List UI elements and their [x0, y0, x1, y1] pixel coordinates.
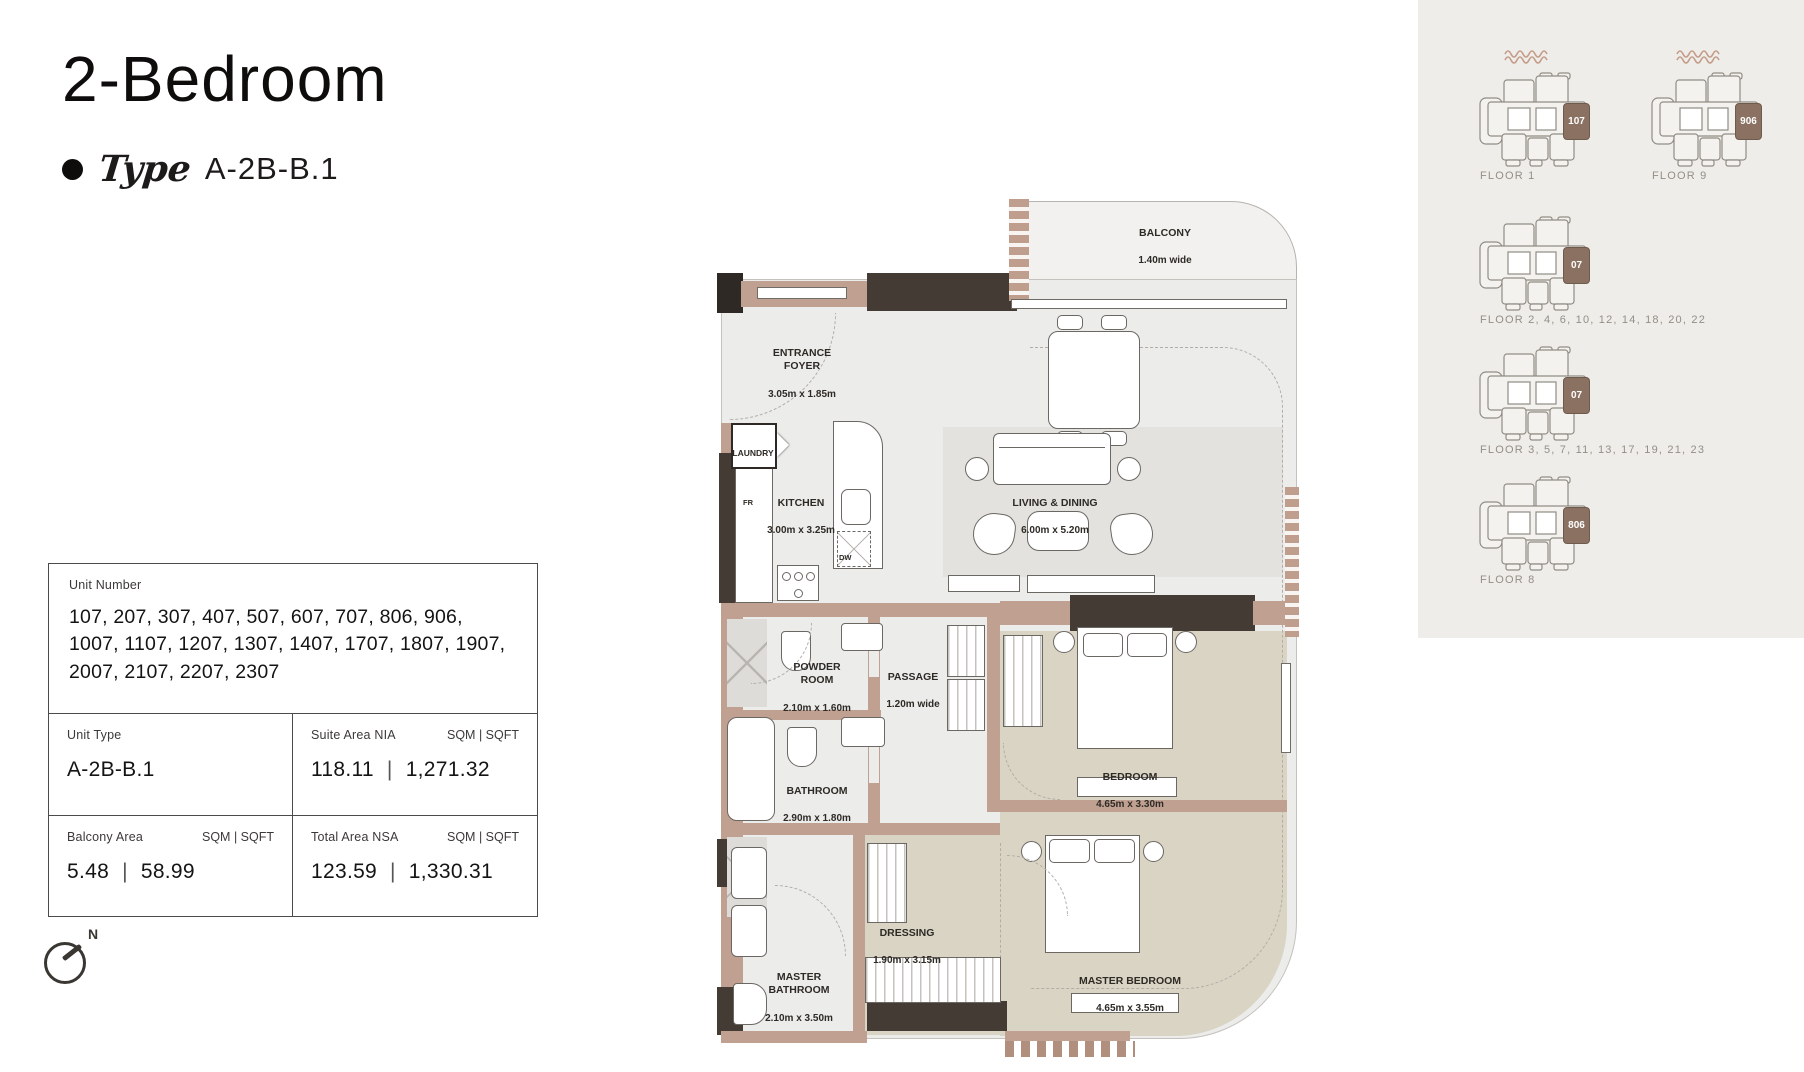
nightstand [1021, 841, 1042, 862]
room-name: LIVING & DINING [975, 497, 1135, 511]
keyplan-unit-badge: 07 [1563, 247, 1590, 284]
balcony-area-value: 5.48 | 58.99 [67, 860, 274, 884]
total-area-units: SQM | SQFT [447, 830, 519, 844]
room-dims: 3.05m x 1.85m [741, 388, 863, 401]
shower-tile [727, 619, 767, 707]
unit-number-label: Unit Number [69, 578, 517, 592]
balcony-area-sqm: 5.48 [67, 860, 109, 884]
room-dims: 4.65m x 3.55m [1045, 1002, 1215, 1015]
suite-area-sqft: 1,271.32 [406, 758, 490, 782]
value-separator: | [122, 860, 128, 884]
keyplan-floor-label: FLOOR 8 [1480, 574, 1535, 586]
window [1281, 663, 1291, 753]
balcony-area-sqft: 58.99 [141, 860, 195, 884]
room-name: MASTER BATHROOM [739, 971, 859, 998]
keyplan-floor-label: FLOOR 2, 4, 6, 10, 12, 14, 18, 20, 22 [1480, 314, 1706, 326]
room-label-master-bathroom: MASTER BATHROOM 2.10m x 3.50m [739, 957, 859, 1038]
sink [731, 905, 767, 957]
room-dims: 1.40m wide [1075, 254, 1255, 267]
door-opening [869, 743, 879, 783]
wall-segment [867, 273, 1017, 311]
wardrobe [867, 843, 907, 923]
unit-number-value: 107, 207, 307, 407, 507, 607, 707, 806, … [69, 604, 517, 686]
room-label-master-bedroom: MASTER BEDROOM 4.65m x 3.55m [1045, 961, 1215, 1029]
balcony-area-label: Balcony Area [67, 830, 143, 844]
burner-icon [794, 572, 803, 581]
room-label-bathroom: BATHROOM 2.90m x 1.80m [767, 771, 867, 839]
keyplans-panel: 107 FLOOR 1 906 FLOOR 9 [1418, 0, 1804, 638]
room-name: BEDROOM [1055, 771, 1205, 785]
keyplan-unit-badge: 806 [1563, 507, 1590, 544]
nightstand [1143, 841, 1164, 862]
keyplan-unit-badge: 107 [1563, 103, 1590, 140]
room-name: POWDER ROOM [767, 661, 867, 688]
unit-info-table: Unit Number 107, 207, 307, 407, 507, 607… [48, 563, 538, 917]
sliding-door-window [1011, 299, 1287, 309]
wall-segment [865, 823, 1000, 835]
console-shelf [948, 575, 1020, 592]
pillow [1049, 839, 1090, 863]
balcony-area-units: SQM | SQFT [202, 830, 274, 844]
type-script-label: Type [97, 148, 193, 190]
stove [777, 565, 819, 601]
dishwasher-label: DW [839, 553, 852, 562]
wall-segment [1070, 595, 1255, 631]
room-label-passage: PASSAGE 1.20m wide [865, 657, 961, 725]
value-separator: | [387, 758, 393, 782]
room-name: KITCHEN [755, 497, 847, 511]
keyplan-floor-label: FLOOR 1 [1480, 170, 1535, 182]
dining-chair [1057, 315, 1083, 330]
nightstand [1175, 631, 1197, 653]
room-dims: 6.00m x 5.20m [975, 524, 1135, 537]
keyplan-floor-label: FLOOR 3, 5, 7, 11, 13, 17, 19, 21, 23 [1480, 444, 1705, 456]
north-compass: N [42, 926, 112, 986]
fridge-label: FR [743, 498, 753, 507]
room-name: LAUNDRY [727, 448, 779, 459]
room-dims: 1.20m wide [865, 698, 961, 711]
window [757, 287, 847, 299]
room-label-laundry: LAUNDRY [727, 437, 779, 470]
suite-area-sqm: 118.11 [311, 758, 374, 782]
keyplan-unit-badge: 07 [1563, 377, 1590, 414]
wall-segment [721, 603, 1013, 617]
room-name: BALCONY [1075, 227, 1255, 241]
total-area-cell: Total Area NSA SQM | SQFT 123.59 | 1,330… [293, 816, 537, 917]
wall-segment [1000, 601, 1070, 625]
page-title: 2-Bedroom [62, 42, 388, 116]
burner-icon [794, 589, 803, 598]
room-name: DRESSING [837, 927, 977, 941]
unit-type-value: A-2B-B.1 [67, 758, 274, 782]
sofa [993, 433, 1111, 485]
room-name: MASTER BEDROOM [1045, 975, 1215, 989]
side-table [965, 457, 989, 481]
room-dims: 2.90m x 1.80m [767, 812, 867, 825]
wall-segment [1253, 601, 1287, 625]
keyplan-unit-badge: 906 [1735, 103, 1762, 140]
dining-table [1048, 331, 1140, 429]
unit-type-cell: Unit Type A-2B-B.1 [49, 714, 293, 815]
pillow [1094, 839, 1135, 863]
nightstand [1053, 631, 1075, 653]
pillow [1127, 633, 1167, 657]
wall-segment [1005, 1031, 1130, 1041]
dining-chair [1101, 315, 1127, 330]
total-area-value: 123.59 | 1,330.31 [311, 860, 519, 884]
compass-north-label: N [88, 926, 98, 942]
balcony-wall-hatched [1009, 199, 1029, 301]
total-area-sqm: 123.59 [311, 860, 377, 884]
room-dims: 2.10m x 1.60m [767, 702, 867, 715]
floor-plan: BALCONY 1.40m wide ENTRANCE FOYER 3.05m … [715, 195, 1310, 1070]
room-name: PASSAGE [865, 671, 961, 685]
wall-segment [717, 273, 743, 313]
right-ledge-hatched [1285, 487, 1299, 637]
value-separator: | [390, 860, 396, 884]
room-dims: 4.65m x 3.30m [1055, 798, 1205, 811]
room-label-balcony: BALCONY 1.40m wide [1075, 213, 1255, 281]
wardrobe [1003, 635, 1043, 727]
sink [731, 847, 767, 899]
burner-icon [782, 572, 791, 581]
suite-area-label: Suite Area NIA [311, 728, 396, 742]
burner-icon [806, 572, 815, 581]
room-label-entrance-foyer: ENTRANCE FOYER 3.05m x 1.85m [741, 333, 863, 414]
unit-type-label: Unit Type [67, 728, 274, 742]
unit-type-heading: Type A-2B-B.1 [62, 148, 339, 190]
pillow [1083, 633, 1123, 657]
sea-waves-icon [1676, 48, 1724, 68]
room-label-living-dining: LIVING & DINING 6.00m x 5.20m [975, 483, 1135, 551]
bullet-icon [62, 159, 83, 180]
balcony-area-cell: Balcony Area SQM | SQFT 5.48 | 58.99 [49, 816, 293, 917]
wall-segment [867, 1001, 1007, 1031]
total-area-sqft: 1,330.31 [409, 860, 493, 884]
bottom-teeth-hatch [1005, 1041, 1135, 1057]
room-name: ENTRANCE FOYER [741, 347, 863, 374]
tv-console [1027, 575, 1155, 593]
toilet [787, 727, 817, 767]
room-dims: 3.00m x 3.25m [755, 524, 847, 537]
room-label-bedroom: BEDROOM 4.65m x 3.30m [1055, 757, 1205, 825]
suite-area-cell: Suite Area NIA SQM | SQFT 118.11 | 1,271… [293, 714, 537, 815]
total-area-label: Total Area NSA [311, 830, 399, 844]
wall-segment [987, 617, 1000, 812]
room-name: BATHROOM [767, 785, 867, 799]
keyplan-floor-label: FLOOR 9 [1652, 170, 1707, 182]
room-dims: 2.10m x 3.50m [739, 1012, 859, 1025]
sea-waves-icon [1504, 48, 1552, 68]
side-table [1117, 457, 1141, 481]
suite-area-units: SQM | SQFT [447, 728, 519, 742]
unit-number-cell: Unit Number 107, 207, 307, 407, 507, 607… [49, 564, 537, 714]
suite-area-value: 118.11 | 1,271.32 [311, 758, 519, 782]
room-label-kitchen: KITCHEN 3.00m x 3.25m [755, 483, 847, 551]
room-label-powder-room: POWDER ROOM 2.10m x 1.60m [767, 647, 867, 728]
type-value: A-2B-B.1 [205, 151, 339, 187]
